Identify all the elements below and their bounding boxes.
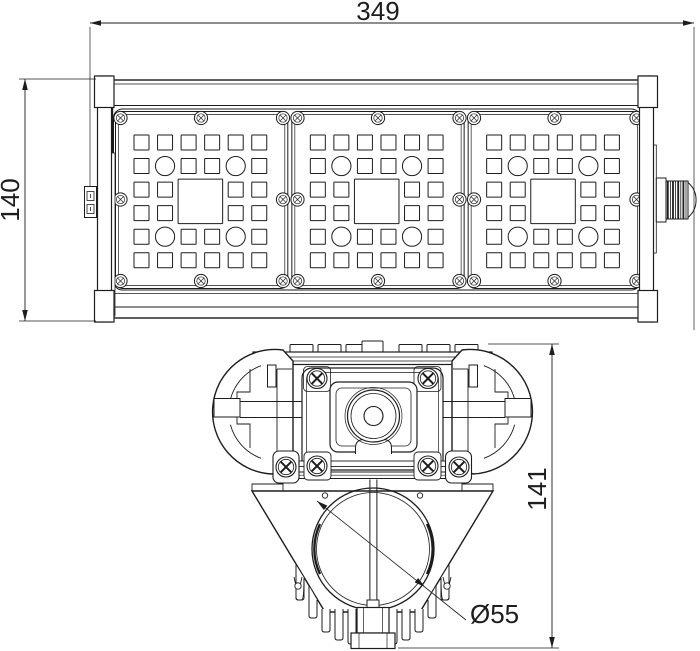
mount-tab xyxy=(290,345,313,353)
gland-ribbed-body xyxy=(666,181,688,219)
gland-flange xyxy=(656,178,666,222)
screw-icon xyxy=(114,111,127,124)
gland-dome xyxy=(688,183,696,218)
led-module-frame xyxy=(116,112,288,289)
clamp-hook xyxy=(417,493,422,498)
screw-icon xyxy=(548,274,561,287)
screw-icon xyxy=(291,193,304,206)
end-cap-left xyxy=(98,76,112,322)
mount-tab xyxy=(318,345,341,353)
dimension-arrow-icon xyxy=(22,79,28,90)
screw-icon xyxy=(453,193,466,206)
front-view-luminaire xyxy=(85,76,697,322)
shoulder-step xyxy=(252,484,283,491)
end-cap-right xyxy=(640,76,654,322)
wing-slot xyxy=(505,399,531,418)
led-module xyxy=(468,112,640,289)
screw-icon xyxy=(276,111,289,124)
mount-tab-center xyxy=(362,341,383,353)
bolt-block xyxy=(357,608,389,634)
led-module xyxy=(116,112,288,289)
screw-icon xyxy=(307,369,327,389)
screw-icon xyxy=(467,111,480,124)
heatsink-fin xyxy=(415,609,423,632)
screw-icon xyxy=(453,274,466,287)
dimension-arrow-icon xyxy=(90,20,101,26)
screw-icon xyxy=(291,274,304,287)
led-module-frame xyxy=(292,112,464,289)
wing-groove xyxy=(469,365,478,387)
dimension-arrow-icon xyxy=(683,20,694,26)
wing-groove xyxy=(268,365,277,387)
heatsink-fin xyxy=(402,609,410,640)
dimension-arrow-icon xyxy=(549,637,555,648)
dim-overall-height-label: 140 xyxy=(0,178,25,221)
screw-icon xyxy=(276,457,296,477)
screw-icon xyxy=(467,193,480,206)
clamp-hook xyxy=(322,493,327,498)
screw-icon xyxy=(114,274,127,287)
screw-icon xyxy=(418,456,438,476)
dim-tube-diameter-label: Ø55 xyxy=(470,599,519,629)
dimension-arrow-icon xyxy=(22,310,28,321)
dim-section-height-label: 141 xyxy=(522,467,552,510)
heatsink-fin xyxy=(322,609,330,632)
end-cap-right-flange xyxy=(638,76,658,108)
screw-icon xyxy=(307,456,327,476)
screw-icon xyxy=(194,111,207,124)
screw-icon xyxy=(449,457,469,477)
heatsink-fin xyxy=(335,609,343,640)
mount-tab xyxy=(427,345,450,353)
shoulder-step xyxy=(462,484,493,491)
bolt-nut xyxy=(351,633,395,649)
screw-icon xyxy=(291,111,304,124)
end-cap-right-flange xyxy=(638,291,658,323)
screw-icon xyxy=(371,274,384,287)
screw-icon xyxy=(194,274,207,287)
screw-icon xyxy=(548,111,561,124)
dimension-arrow-icon xyxy=(549,344,555,355)
screw-icon xyxy=(453,111,466,124)
led-module-frame xyxy=(468,112,640,289)
heatsink-body xyxy=(252,491,493,612)
wing-slot xyxy=(214,399,240,418)
keyhole-slot xyxy=(295,583,301,589)
keyhole-slot xyxy=(444,583,450,589)
bolt-tab xyxy=(367,600,379,608)
screw-icon xyxy=(276,193,289,206)
screw-icon xyxy=(418,369,438,389)
mount-tab xyxy=(399,345,422,353)
screw-icon xyxy=(371,111,384,124)
screw-icon xyxy=(276,274,289,287)
led-module xyxy=(292,112,464,289)
end-cap-left-flange xyxy=(95,76,115,108)
drawing-page: 349 140 141 Ø55 xyxy=(0,0,700,651)
screw-icon xyxy=(467,274,480,287)
end-cap-left-flange xyxy=(95,291,115,323)
knob xyxy=(348,390,400,442)
technical-drawing: 349 140 141 Ø55 xyxy=(0,0,700,651)
screw-icon xyxy=(114,193,127,206)
dim-overall-width-label: 349 xyxy=(356,0,399,26)
